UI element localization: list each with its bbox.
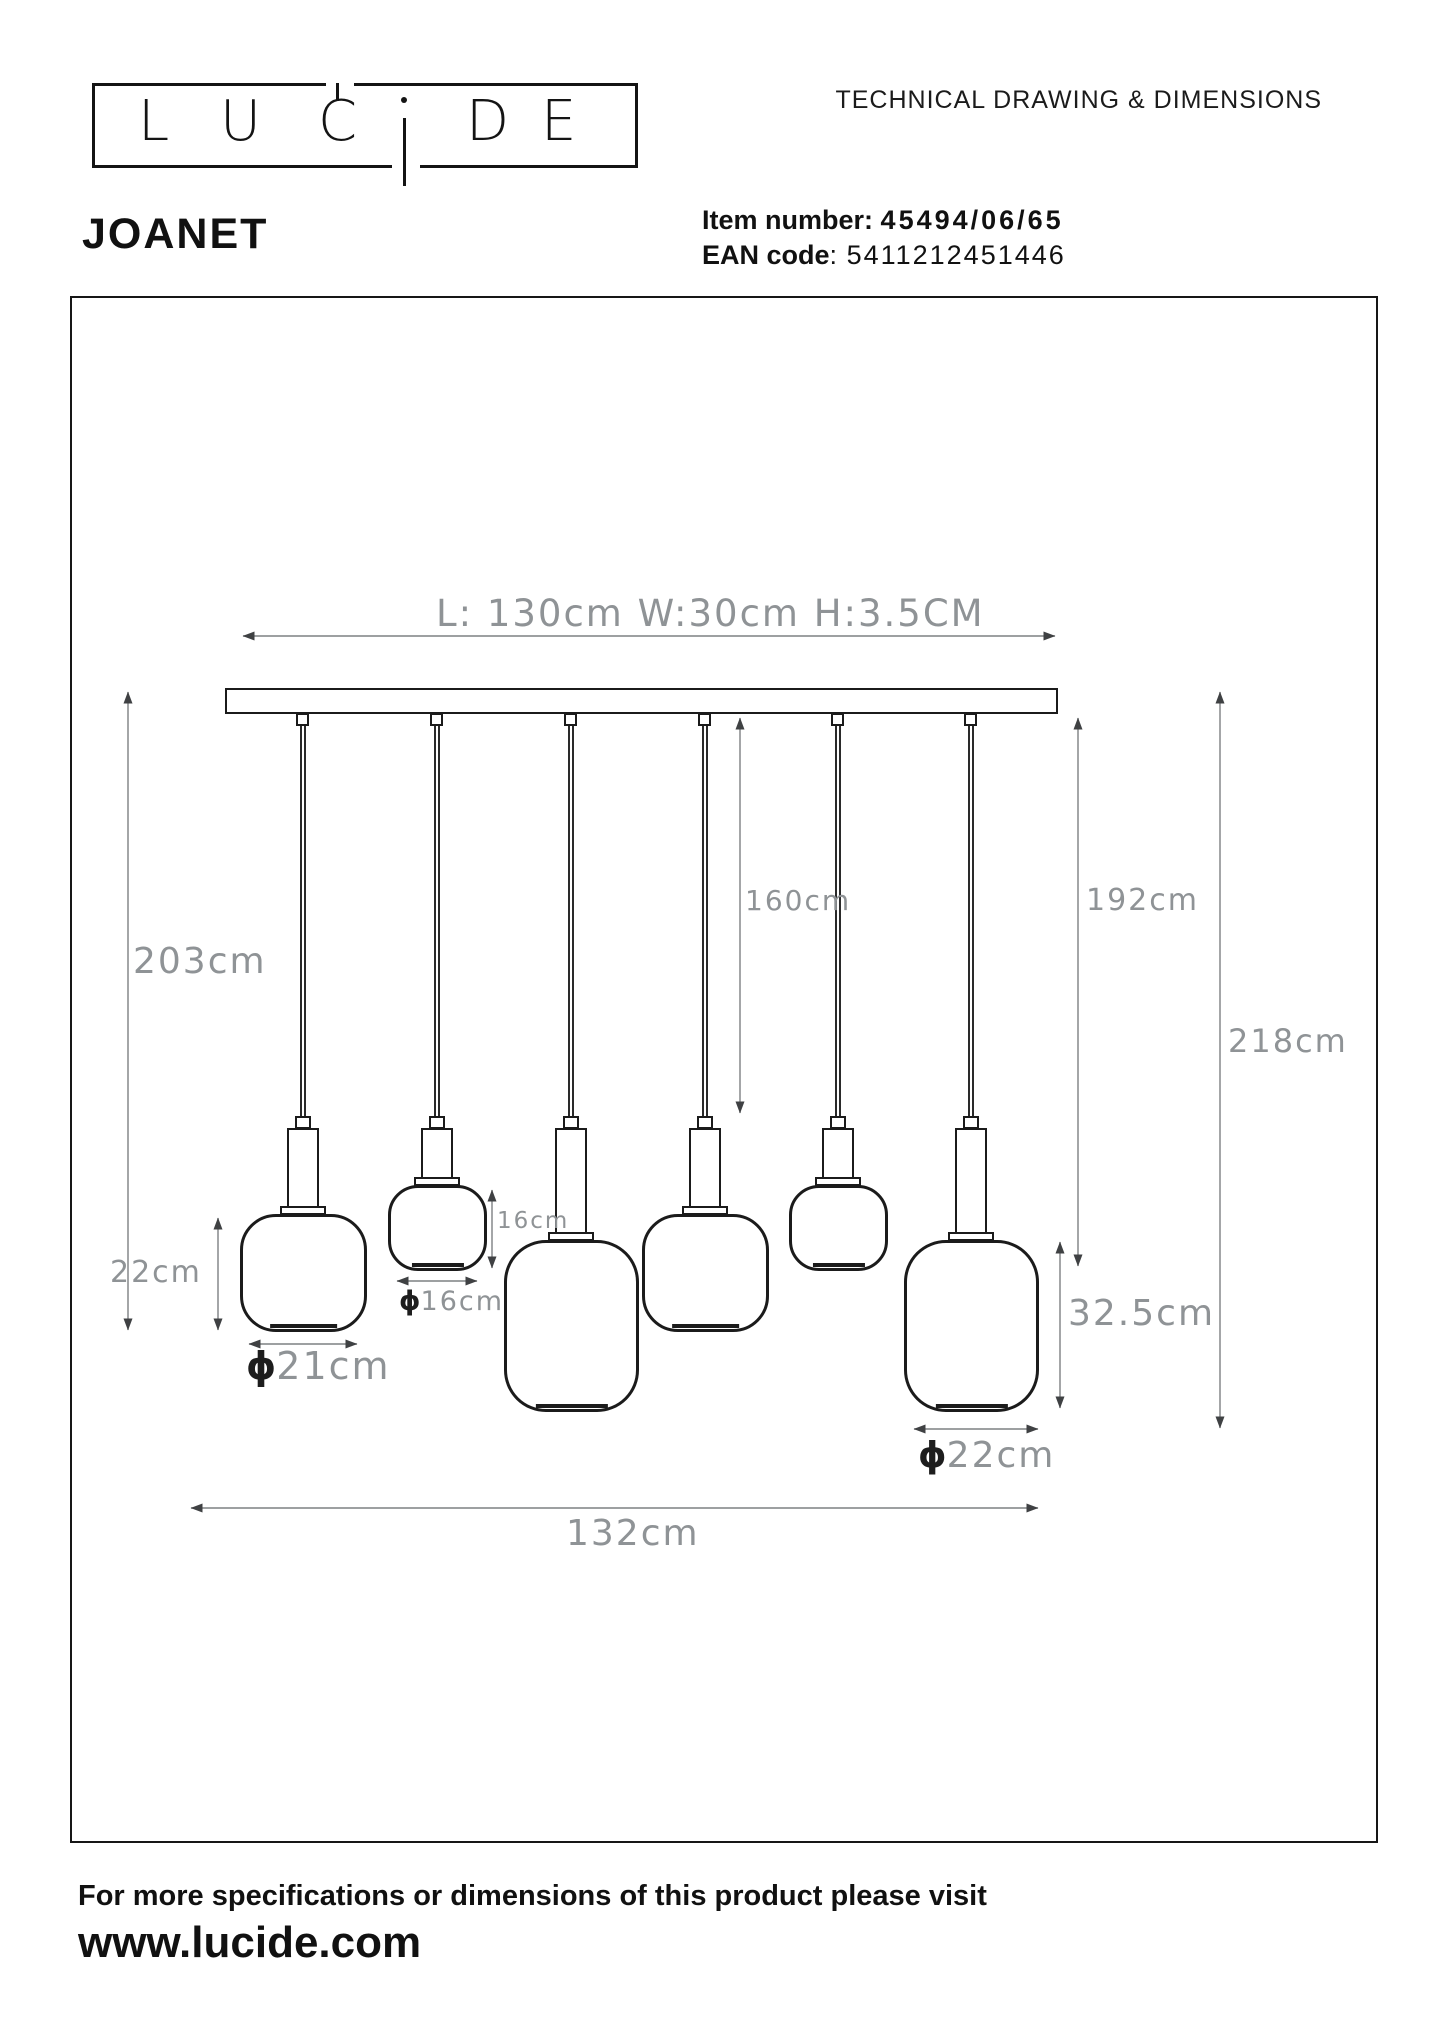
- dim-label-shade-small-height: 16cm: [497, 1209, 569, 1234]
- dim-value: 22cm: [947, 1435, 1056, 1476]
- dim-label-shade-large-height: 32.5cm: [1068, 1294, 1215, 1334]
- diameter-symbol: ϕ: [918, 1435, 947, 1476]
- diameter-symbol: ϕ: [246, 1344, 276, 1388]
- footer-note: For more specifications or dimensions of…: [78, 1880, 987, 1913]
- dim-label-shade-small-diameter: ϕ16cm: [399, 1287, 504, 1317]
- dim-value: 16cm: [421, 1286, 505, 1317]
- dim-value: 21cm: [276, 1344, 390, 1388]
- dim-label-total-height: 218cm: [1228, 1024, 1348, 1059]
- spec-sheet-page: L U C D E TECHNICAL DRAWING & DIMENSIONS…: [0, 0, 1445, 2043]
- dim-label-shade-medium-diameter: ϕ21cm: [246, 1346, 391, 1388]
- dim-label-shade-medium-height: 22cm: [110, 1256, 202, 1289]
- footer-website: www.lucide.com: [78, 1918, 421, 1968]
- dim-label-shade-large-diameter: ϕ22cm: [918, 1436, 1055, 1476]
- dim-label-drop-middle: 160cm: [745, 886, 851, 917]
- dim-label-fixture: L: 130cm W:30cm H:3.5CM: [436, 594, 985, 635]
- diameter-symbol: ϕ: [399, 1286, 421, 1317]
- dim-label-drop-right: 192cm: [1086, 884, 1199, 917]
- dim-label-total-width: 132cm: [566, 1514, 700, 1554]
- dim-label-drop-left: 203cm: [133, 942, 267, 982]
